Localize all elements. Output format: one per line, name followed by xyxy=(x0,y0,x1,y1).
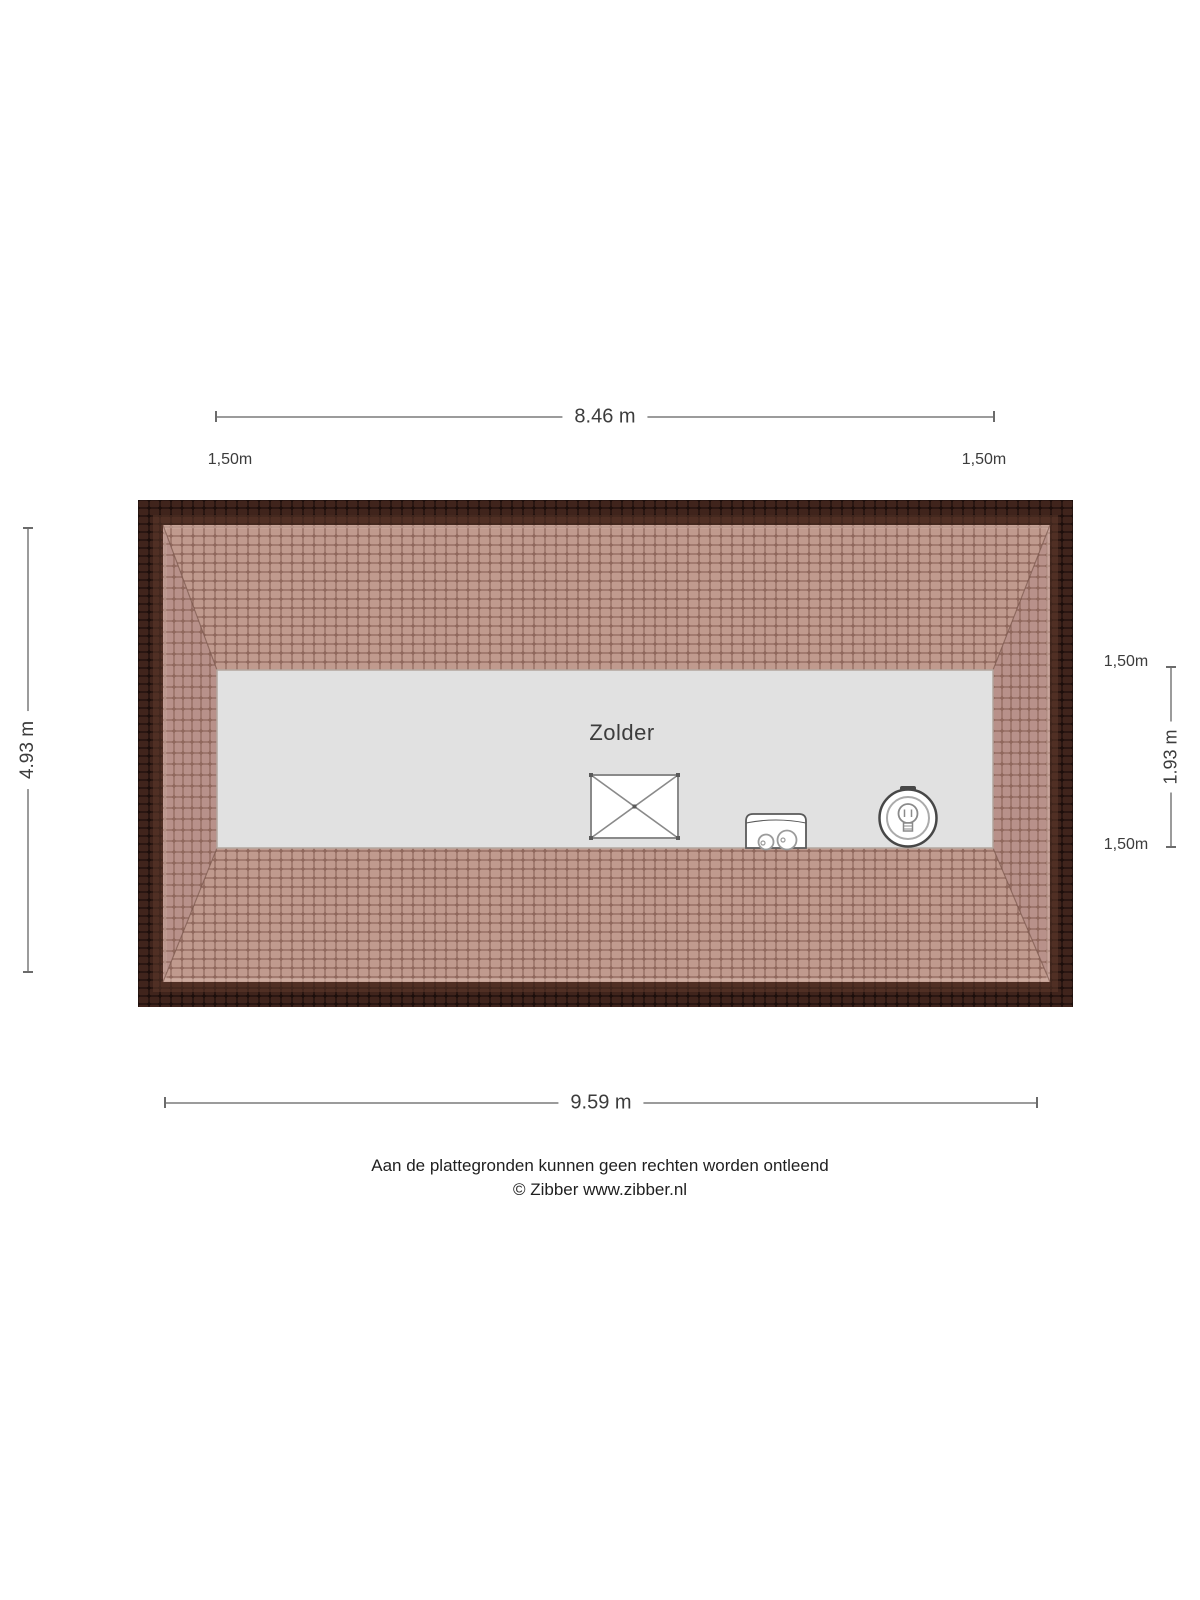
dimension-label-left: 4.93 m xyxy=(17,711,39,789)
dimension-tick xyxy=(1166,666,1176,668)
dimension-label-bottom: 9.59 m xyxy=(558,1092,643,1115)
knee-wall-label-right-upper: 1,50m xyxy=(1104,653,1148,671)
dimension-label-top: 8.46 m xyxy=(562,406,647,429)
dimension-tick xyxy=(23,971,33,973)
roof-window-icon xyxy=(589,773,680,840)
roof-slope-top xyxy=(163,525,1050,670)
knee-wall-label-right-lower: 1,50m xyxy=(1104,836,1148,854)
dimension-tick xyxy=(164,1097,166,1108)
footer-disclaimer: Aan de plattegronden kunnen geen rechten… xyxy=(0,1154,1200,1178)
dimension-tick xyxy=(993,411,995,422)
footer: Aan de plattegronden kunnen geen rechten… xyxy=(0,1154,1200,1202)
knee-wall-label-top-left: 1,50m xyxy=(208,451,252,469)
dimension-tick xyxy=(23,527,33,529)
roof-slope-bottom xyxy=(163,848,1050,982)
dimension-label-right: 1.93 m xyxy=(1161,721,1182,792)
floorplan-page: 8.46 m 1,50m 1,50m 4.93 m 1,50m 1.93 m 1… xyxy=(0,0,1200,1600)
boiler-unit-icon xyxy=(746,814,806,850)
room-label-zolder: Zolder xyxy=(589,720,654,746)
dimension-tick xyxy=(1036,1097,1038,1108)
dimension-tick xyxy=(215,411,217,422)
footer-credit: © Zibber www.zibber.nl xyxy=(0,1178,1200,1202)
floorplan-drawing xyxy=(138,500,1073,1007)
dimension-tick xyxy=(1166,846,1176,848)
knee-wall-label-top-right: 1,50m xyxy=(962,451,1006,469)
